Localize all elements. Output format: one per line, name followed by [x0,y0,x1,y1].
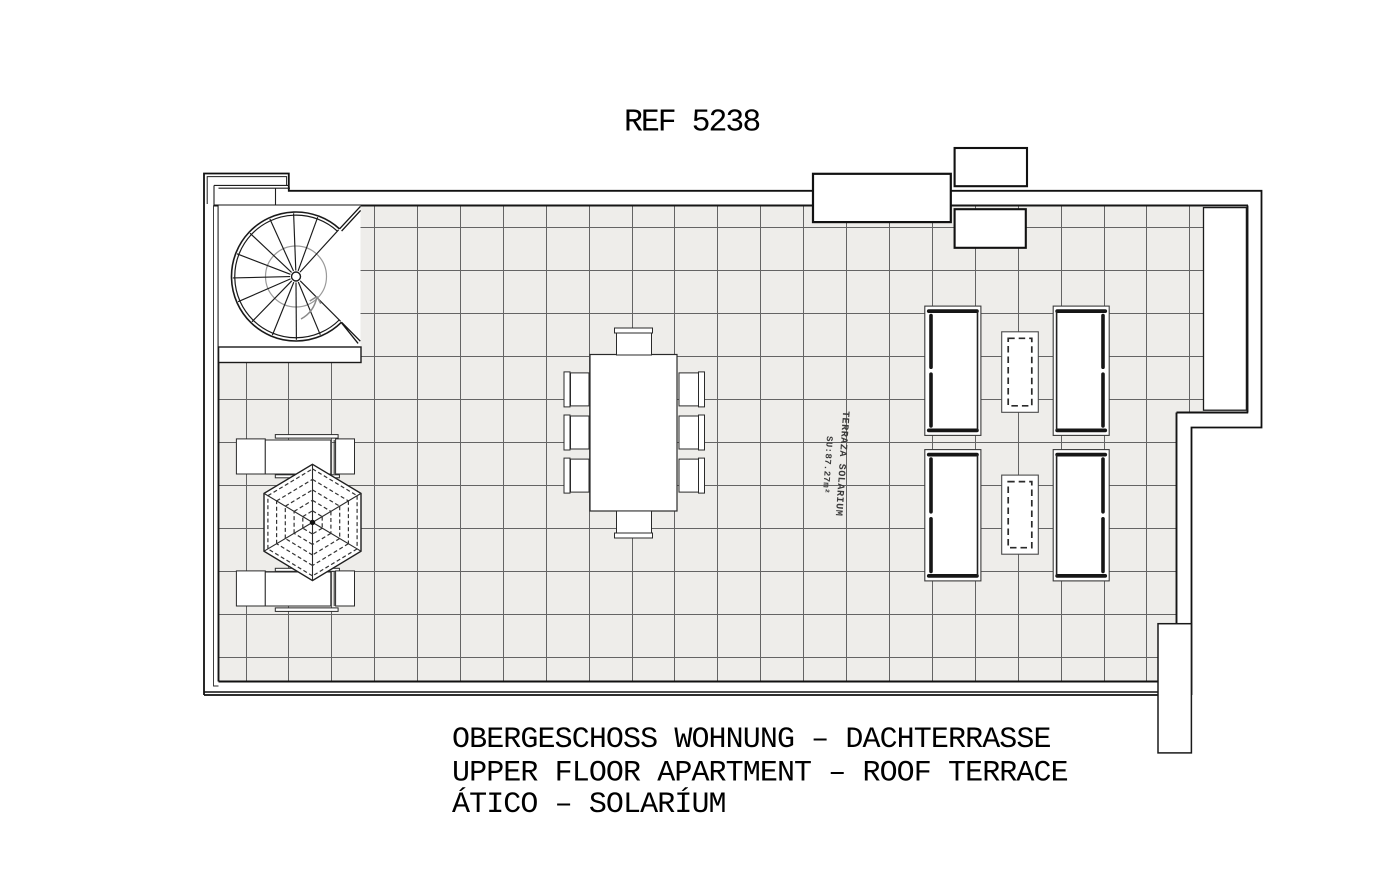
svg-text:ÁTICO – SOLARÍUM: ÁTICO – SOLARÍUM [452,787,726,822]
svg-text:UPPER FLOOR APARTMENT – ROOF T: UPPER FLOOR APARTMENT – ROOF TERRACE [452,757,1068,791]
svg-text:REF 5238: REF 5238 [624,105,759,140]
svg-text:OBERGESCHOSS WOHNUNG – DACHTER: OBERGESCHOSS WOHNUNG – DACHTERRASSE [452,723,1051,757]
